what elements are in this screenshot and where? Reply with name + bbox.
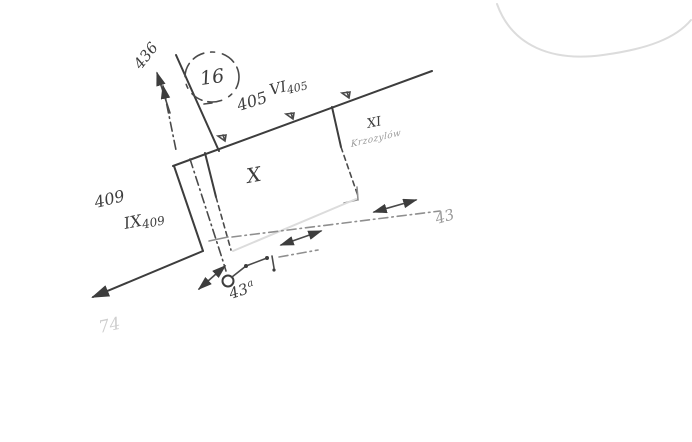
- parcel-ix-sub: 409: [140, 213, 166, 231]
- label-parcel-vi: VI405: [268, 72, 309, 101]
- stamp-bleed-arc: [497, 4, 691, 57]
- label-parcel-x: X: [243, 162, 264, 189]
- junction-tie-lines: [232, 258, 267, 277]
- parcel-ix-roman: IX: [121, 211, 144, 233]
- label-parcel-xi: XI: [365, 114, 384, 132]
- parcel-x-left-edge-solid: [205, 153, 216, 197]
- parcel-x-left-edge-dashed: [216, 197, 231, 250]
- parcel-ix-bottom-boundary: [93, 251, 203, 297]
- junction-dot: [272, 268, 275, 271]
- sheet-number-underline: [204, 103, 212, 104]
- boundary-point-flag: [342, 92, 350, 98]
- measure-arrow-left: [281, 231, 321, 245]
- lane-centerline-upper: [163, 86, 176, 150]
- label-parcel-xi-name: Krzozylów: [350, 127, 401, 150]
- junction-dot: [265, 256, 269, 260]
- label-436: 436: [129, 38, 162, 73]
- label-parcel-ix: IX409: [121, 206, 166, 235]
- label-lane-43: 43: [432, 205, 456, 228]
- parcel-ix-right-edge: [174, 166, 203, 251]
- measure-arrow-right: [374, 200, 416, 212]
- boundary-point-flag: [286, 113, 294, 119]
- cadastral-sketch: 436 16 405 VI405 X XI Krzozylów 409 IX40…: [0, 0, 692, 442]
- label-sheet-16: 16: [199, 65, 226, 90]
- junction-dashdot-right: [279, 250, 318, 257]
- label-405: 405: [234, 88, 270, 115]
- parcel-x-bottom-ghost: [233, 199, 356, 251]
- boundary-point-flag: [218, 135, 226, 141]
- lane43-edge-start: [209, 237, 228, 241]
- parcel-vi-sub: 405: [285, 79, 309, 97]
- junction-arrow: [199, 266, 225, 289]
- parcel-divider-dashed: [341, 147, 358, 196]
- label-409: 409: [91, 186, 126, 212]
- label-ghost-74: 74: [97, 314, 122, 338]
- label-point-43a: 43a: [226, 278, 257, 303]
- parcel-divider-solid: [332, 107, 341, 147]
- junction-dot: [244, 264, 248, 268]
- lane43-centerline: [232, 211, 440, 237]
- junction-tick: [272, 256, 274, 268]
- cadastral-sketch-page: 436 16 405 VI405 X XI Krzozylów 409 IX40…: [0, 0, 692, 442]
